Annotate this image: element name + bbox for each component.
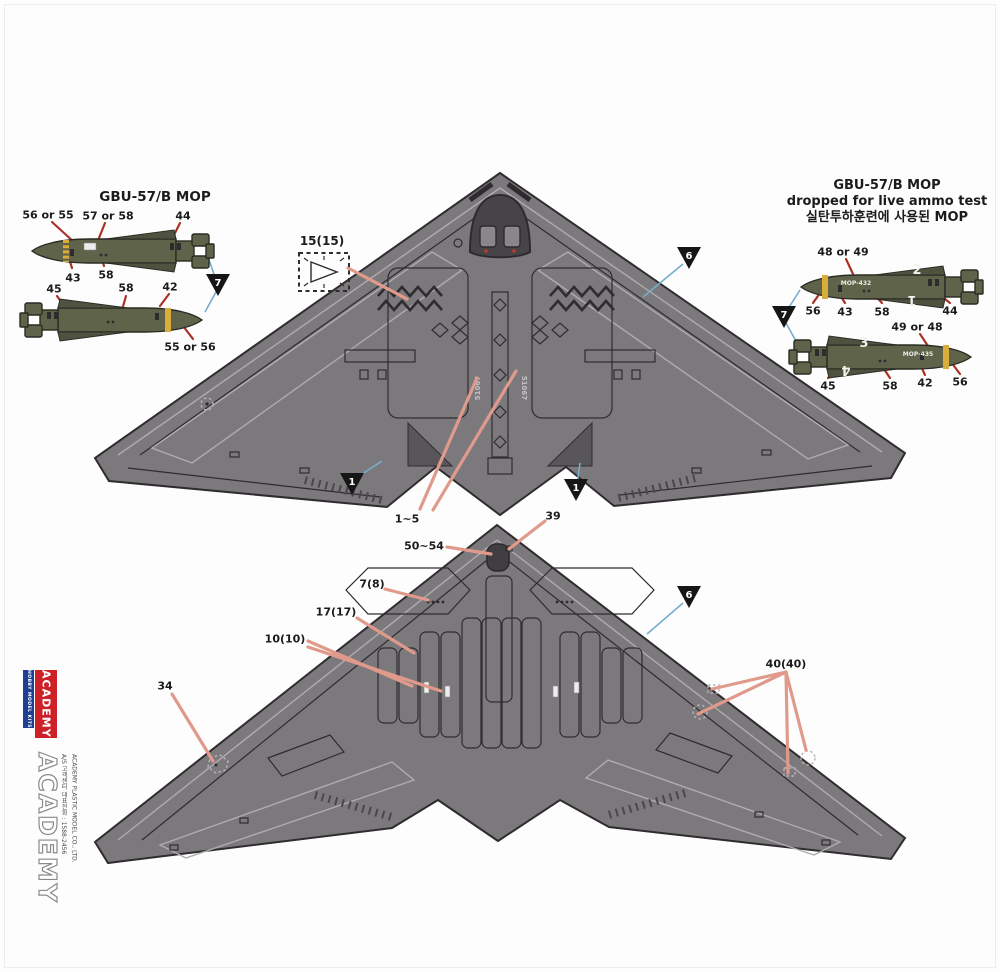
callout-42-left: 42 [162,281,177,294]
bomb-number-2: 2 [912,263,921,278]
marker-7-right: 7 [772,306,796,328]
callout-56or55: 56 or 55 [22,209,73,222]
bomb-right-top: MOP-432 2 1 [801,263,983,308]
marker-7-left-number: 7 [215,278,222,289]
callout-56-right-bottom: 56 [952,376,967,389]
right-title-line3: 실탄투하훈련에 사용된 MOP [787,210,987,226]
marker-1-right: 1 [564,479,588,501]
label-15-15: 15(15) [300,234,344,248]
right-panel-title: GBU-57/B MOP dropped for live ammo test … [787,178,987,226]
b2-bottom-view [95,525,905,863]
callout-49or48: 49 or 48 [891,321,942,334]
callout-45-right: 45 [820,380,835,393]
label-34: 34 [157,680,172,693]
label-17-17: 17(17) [316,606,357,619]
label-39: 39 [545,510,560,523]
callout-42-right: 42 [917,377,932,390]
marker-1-left-number: 1 [349,477,356,488]
right-title-line1: GBU-57/B MOP [787,178,987,194]
instruction-sheet: 51067 51067 [0,0,1000,972]
callout-57or58: 57 or 58 [82,210,133,223]
academy-logo-label: ACADEMY [40,670,53,738]
company-info: ACADEMY PLASTIC MODEL CO., LTD. A/S 고객센터… [58,754,78,863]
bomb-decal-mop435: MOP-435 [903,351,933,358]
callout-58-right-top: 58 [874,306,889,319]
hobby-model-kits-label: HOBBY MODEL KITS [26,670,31,728]
bomb-right-bottom: MOP-435 3 4 [789,336,971,378]
serial-marking-right: 51067 [520,376,528,400]
callout-58-right-bottom: 58 [882,380,897,393]
label-10-10: 10(10) [265,633,306,646]
callout-44-right: 44 [942,305,957,318]
callout-56-right-top: 56 [805,305,820,318]
callout-45-left: 45 [46,283,61,296]
bomb-number-4: 4 [841,362,850,377]
diagram-art: 51067 51067 [0,0,1000,972]
callout-43-right: 43 [837,306,852,319]
marker-6-top-number: 6 [686,251,693,262]
callout-55or56: 55 or 56 [164,341,215,354]
label-40-40: 40(40) [766,658,807,671]
label-1-5: 1~5 [395,513,420,526]
bomb-left-top [32,230,214,272]
bomb-number-1: 1 [907,292,916,307]
callout-44-left: 44 [175,210,190,223]
bomb-decal-mop432: MOP-432 [841,280,871,287]
marker-7-left: 7 [206,274,230,296]
bomb-number-3: 3 [859,336,868,351]
callout-58-left-top: 58 [98,269,113,282]
company-name: ACADEMY PLASTIC MODEL CO., LTD. [68,754,78,863]
bomb-left-bottom [20,299,202,341]
label-50-54: 50~54 [404,540,444,553]
marker-7-right-number: 7 [781,310,788,321]
academy-logo: ACADEMY [35,670,57,738]
hobby-model-kits-banner: HOBBY MODEL KITS [23,670,34,728]
callout-58-left-bottom: 58 [118,282,133,295]
right-title-line2: dropped for live ammo test [787,194,987,210]
marker-6-bottom-number: 6 [686,590,693,601]
left-panel-title: GBU-57/B MOP [99,189,210,205]
label-7-8: 7(8) [359,578,384,591]
callout-43-left: 43 [65,272,80,285]
service-phone: A/S 고객센터 대표전화 : 1588-2456 [58,754,68,863]
callout-48or49: 48 or 49 [817,246,868,259]
marker-1-right-number: 1 [573,483,580,494]
b2-top-view: 51067 51067 [95,173,905,515]
